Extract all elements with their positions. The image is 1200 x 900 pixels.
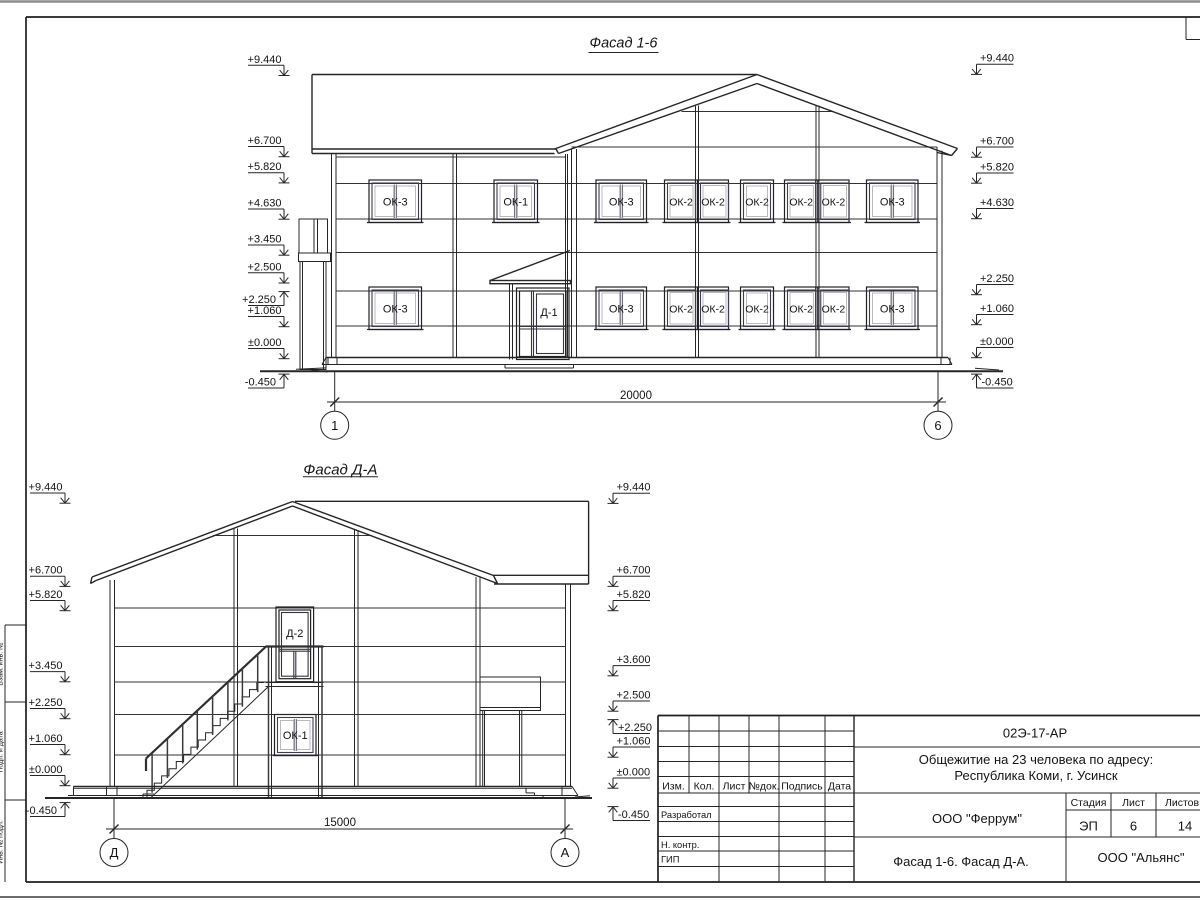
svg-text:±0.000: ±0.000: [980, 336, 1014, 348]
svg-text:Общежитие на 23 человека по ад: Общежитие на 23 человека по адресу:: [919, 752, 1153, 767]
svg-text:+9.440: +9.440: [980, 53, 1014, 65]
svg-text:Изм.: Изм.: [662, 781, 685, 793]
svg-text:+3.600: +3.600: [617, 654, 651, 666]
svg-text:Подп. и дата: Подп. и дата: [0, 731, 5, 772]
svg-text:ОК-2: ОК-2: [669, 303, 693, 315]
svg-text:ОК-3: ОК-3: [880, 303, 905, 315]
svg-text:ОК-1: ОК-1: [503, 196, 528, 208]
svg-text:Фасад Д-А: Фасад Д-А: [303, 462, 377, 479]
svg-text:ОК-3: ОК-3: [383, 303, 408, 315]
svg-text:+1.060: +1.060: [980, 303, 1014, 315]
svg-text:+4.630: +4.630: [980, 197, 1014, 209]
svg-text:+2.250: +2.250: [29, 697, 63, 709]
svg-text:Д: Д: [110, 845, 119, 860]
svg-text:Листов: Листов: [1165, 797, 1200, 809]
svg-text:6: 6: [1130, 819, 1137, 834]
svg-text:ОК-1: ОК-1: [283, 730, 308, 742]
svg-text:+2.500: +2.500: [248, 261, 282, 273]
svg-text:ОК-2: ОК-2: [701, 196, 725, 208]
svg-text:Д-2: Д-2: [286, 628, 303, 640]
svg-text:ООО "Альянс": ООО "Альянс": [1098, 850, 1185, 865]
svg-text:+3.450: +3.450: [248, 234, 282, 246]
svg-text:15000: 15000: [324, 817, 356, 829]
svg-text:+6.700: +6.700: [617, 565, 651, 577]
svg-text:6: 6: [934, 418, 941, 433]
svg-text:ГИП: ГИП: [661, 855, 679, 865]
svg-text:+5.820: +5.820: [980, 162, 1014, 174]
svg-text:Н. контр.: Н. контр.: [661, 840, 699, 850]
svg-text:ЭП: ЭП: [1079, 819, 1098, 834]
svg-text:ОК-2: ОК-2: [701, 303, 725, 315]
svg-text:+1.060: +1.060: [248, 305, 282, 317]
svg-text:±0.000: ±0.000: [617, 767, 651, 779]
svg-text:-0.450: -0.450: [982, 377, 1013, 389]
svg-text:Фасад 1-6. Фасад Д-А.: Фасад 1-6. Фасад Д-А.: [893, 854, 1029, 869]
svg-text:ОК-2: ОК-2: [822, 303, 846, 315]
svg-text:Д-1: Д-1: [540, 307, 557, 319]
svg-text:+9.440: +9.440: [248, 54, 282, 66]
svg-text:ОК-3: ОК-3: [609, 196, 634, 208]
svg-text:ОК-2: ОК-2: [789, 303, 813, 315]
svg-text:±0.000: ±0.000: [248, 337, 282, 349]
svg-text:Фасад 1-6: Фасад 1-6: [590, 36, 659, 52]
svg-text:ОК-3: ОК-3: [880, 196, 905, 208]
svg-text:ООО "Феррум": ООО "Феррум": [932, 811, 1022, 826]
svg-text:-0.450: -0.450: [618, 809, 649, 821]
svg-text:+1.060: +1.060: [617, 736, 651, 748]
svg-text:+3.450: +3.450: [29, 660, 63, 672]
svg-text:+6.700: +6.700: [980, 136, 1014, 148]
svg-text:Взам. инв. №: Взам. инв. №: [0, 642, 5, 685]
svg-text:ОК-2: ОК-2: [822, 196, 846, 208]
svg-text:ОК-2: ОК-2: [789, 196, 813, 208]
svg-text:1: 1: [331, 418, 338, 433]
svg-text:Республика Коми, г. Усинск: Республика Коми, г. Усинск: [954, 768, 1117, 783]
svg-text:Разработал: Разработал: [661, 810, 712, 820]
svg-text:Лист: Лист: [1122, 797, 1145, 809]
svg-text:+9.440: +9.440: [29, 482, 63, 494]
svg-text:+5.820: +5.820: [248, 161, 282, 173]
svg-text:А: А: [561, 845, 570, 860]
svg-text:20000: 20000: [620, 390, 652, 402]
svg-text:+5.820: +5.820: [617, 589, 651, 601]
svg-text:ОК-3: ОК-3: [609, 303, 634, 315]
svg-text:Инв. № подл.: Инв. № подл.: [0, 820, 5, 864]
svg-text:№док.: №док.: [749, 781, 780, 793]
svg-text:+1.060: +1.060: [29, 733, 63, 745]
svg-text:+6.700: +6.700: [248, 135, 282, 147]
svg-text:ОК-2: ОК-2: [745, 196, 769, 208]
svg-text:14: 14: [1178, 819, 1192, 834]
svg-text:+2.500: +2.500: [617, 690, 651, 702]
svg-text:ОК-2: ОК-2: [669, 196, 693, 208]
svg-text:02Э-17-АР: 02Э-17-АР: [1003, 726, 1067, 741]
svg-text:ОК-2: ОК-2: [745, 303, 769, 315]
svg-text:±0.000: ±0.000: [29, 764, 63, 776]
svg-text:+9.440: +9.440: [617, 482, 651, 494]
svg-text:+4.630: +4.630: [248, 198, 282, 210]
svg-text:-0.450: -0.450: [245, 377, 276, 389]
svg-text:+5.820: +5.820: [29, 589, 63, 601]
svg-text:+6.700: +6.700: [29, 565, 63, 577]
svg-text:ОК-3: ОК-3: [383, 196, 408, 208]
svg-text:Стадия: Стадия: [1071, 797, 1107, 809]
svg-text:Лист: Лист: [723, 781, 746, 793]
svg-text:Дата: Дата: [828, 781, 851, 793]
svg-text:-0.450: -0.450: [26, 805, 57, 817]
svg-text:Подпись: Подпись: [781, 781, 823, 793]
svg-text:+2.250: +2.250: [980, 273, 1014, 285]
svg-text:+2.250: +2.250: [618, 722, 652, 734]
svg-text:Кол.: Кол.: [694, 781, 715, 793]
